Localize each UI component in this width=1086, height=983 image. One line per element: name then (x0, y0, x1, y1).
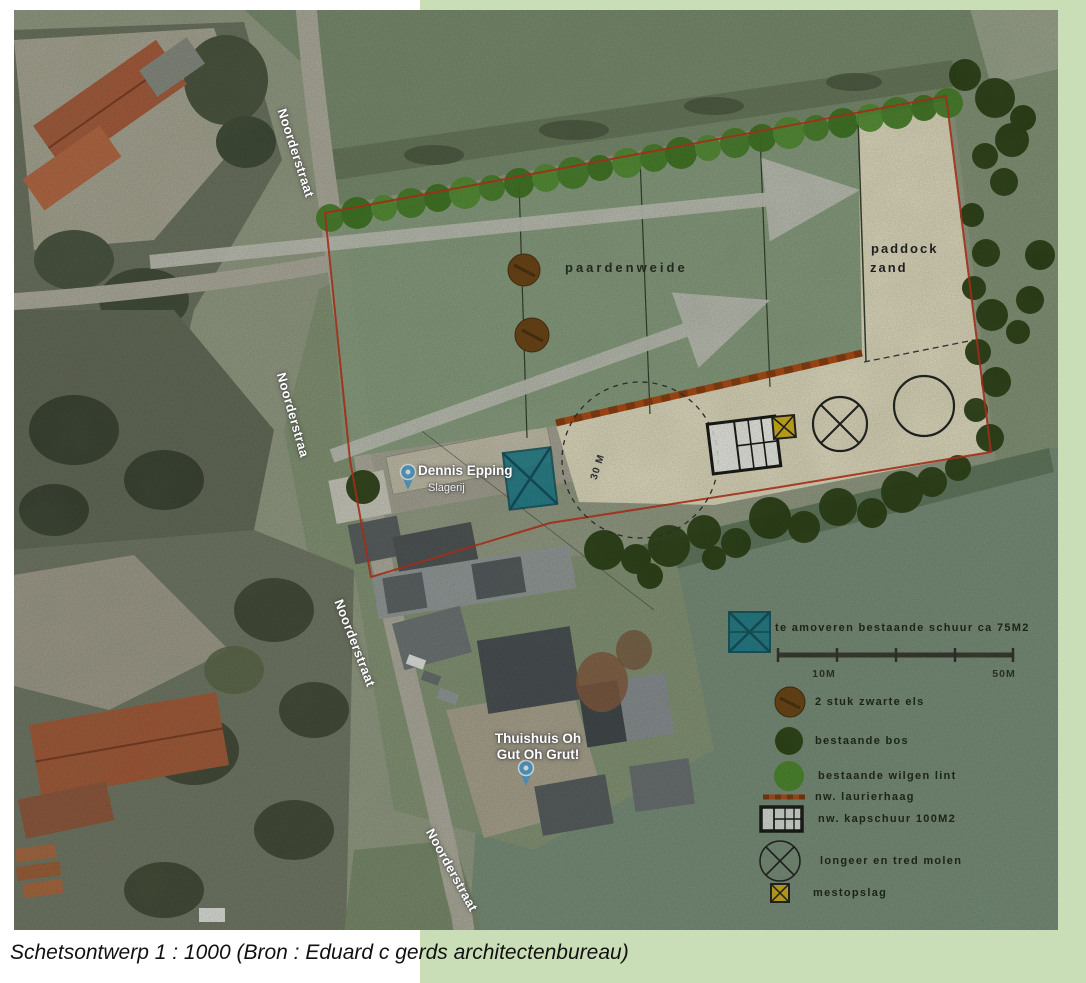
sketch-design-page: Noorderstraat Noorderstraa Noorderstraat… (0, 0, 1086, 983)
site-plan-map: Noorderstraat Noorderstraa Noorderstraat… (14, 10, 1058, 930)
aerial-and-plan-graphics (14, 10, 1058, 930)
caption: Schetsontwerp 1 : 1000 (Bron : Eduard c … (10, 941, 629, 965)
texture-coarse (14, 10, 1058, 930)
